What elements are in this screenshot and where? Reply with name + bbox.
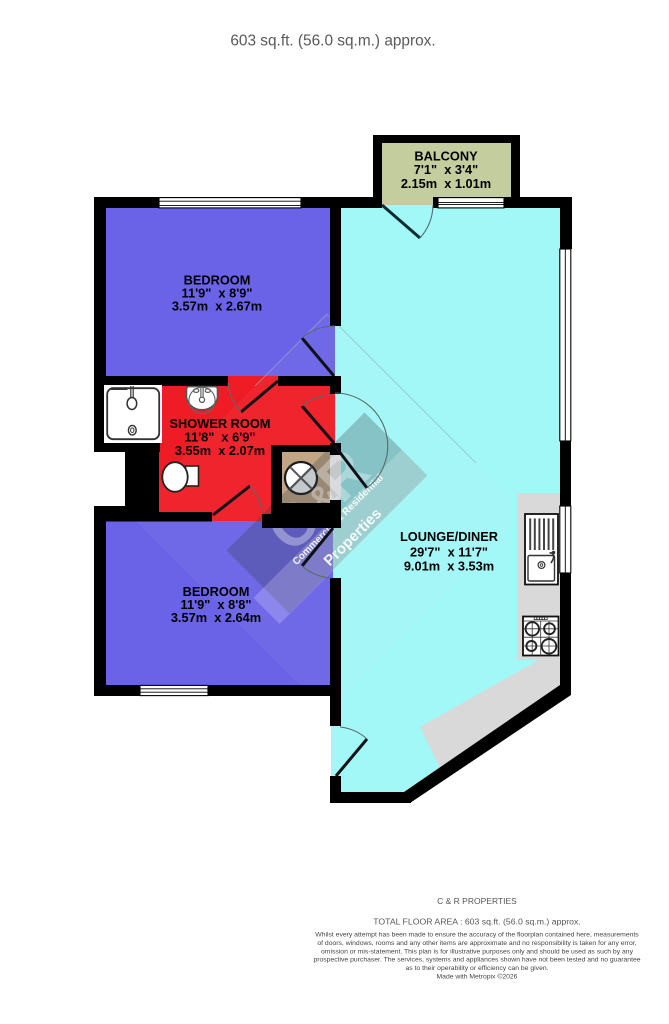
- svg-text:of doors, windows, rooms and a: of doors, windows, rooms and any other i…: [317, 940, 636, 947]
- svg-text:3.57m x 2.67m: 3.57m x 2.67m: [172, 299, 262, 314]
- svg-text:3.55m x 2.07m: 3.55m x 2.07m: [175, 443, 265, 458]
- svg-text:prospective purchaser. The ser: prospective purchaser. The services, sys…: [313, 957, 640, 964]
- svg-text:as to their operability or eff: as to their operability or efficiency ca…: [405, 965, 548, 972]
- svg-text:Made with Metropix ©2026: Made with Metropix ©2026: [437, 972, 518, 980]
- svg-text:603 sq.ft. (56.0 sq.m.) approx: 603 sq.ft. (56.0 sq.m.) approx.: [230, 33, 435, 50]
- svg-text:2.15m x 1.01m: 2.15m x 1.01m: [401, 176, 491, 191]
- svg-text:Whilst every attempt has been: Whilst every attempt has been made to en…: [315, 932, 639, 939]
- svg-text:omission or mis-statement. Thi: omission or mis-statement. This plan is …: [321, 948, 634, 955]
- svg-text:29'7" x 11'7": 29'7" x 11'7": [410, 545, 488, 560]
- svg-text:7'1" x 3'4": 7'1" x 3'4": [414, 162, 478, 177]
- svg-text:TOTAL FLOOR AREA : 603 sq.ft.: TOTAL FLOOR AREA : 603 sq.ft. (56.0 sq.m…: [373, 917, 580, 927]
- svg-text:3.57m x 2.64m: 3.57m x 2.64m: [171, 610, 261, 625]
- svg-text:C & R PROPERTIES: C & R PROPERTIES: [437, 896, 517, 906]
- svg-text:LOUNGE/DINER: LOUNGE/DINER: [400, 529, 498, 544]
- svg-text:9.01m x 3.53m: 9.01m x 3.53m: [404, 559, 494, 574]
